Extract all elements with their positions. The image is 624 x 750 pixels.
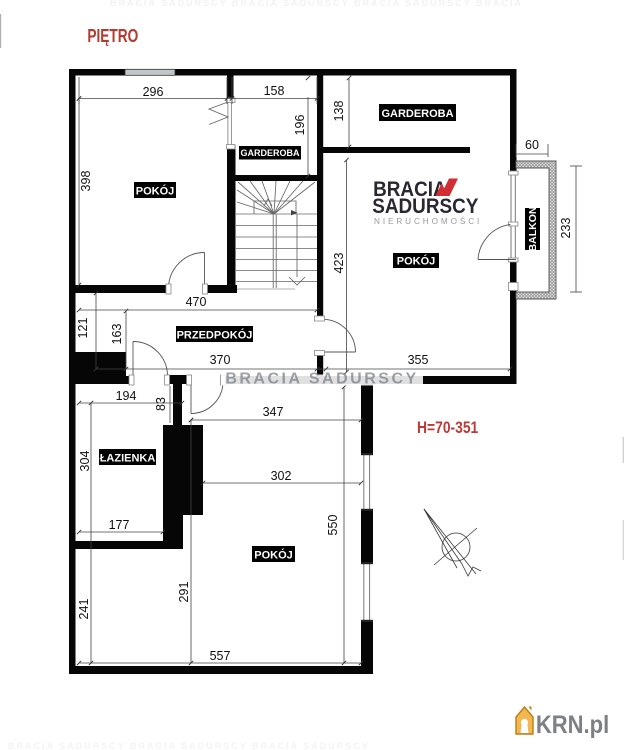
- svg-text:196: 196: [293, 115, 307, 136]
- svg-text:470: 470: [186, 295, 207, 309]
- svg-text:347: 347: [263, 405, 284, 419]
- svg-text:SADURSCY: SADURSCY: [372, 195, 479, 218]
- svg-text:296: 296: [143, 85, 164, 99]
- svg-text:233: 233: [559, 218, 573, 239]
- svg-text:423: 423: [332, 253, 346, 274]
- svg-text:NIERUCHOMOŚCI: NIERUCHOMOŚCI: [374, 215, 482, 226]
- svg-text:BRACIA SADURSCY BRACIA SADUR: BRACIA SADURSCY BRACIA SADURSCY BRACIA S…: [8, 741, 370, 750]
- svg-text:60: 60: [525, 138, 539, 152]
- svg-text:BRACIA SADURSCY BRACIA SADUR: BRACIA SADURSCY BRACIA SADURSCY BRACIA S…: [110, 0, 523, 8]
- svg-text:POKÓJ: POKÓJ: [136, 185, 175, 198]
- svg-text:194: 194: [116, 389, 137, 403]
- svg-text:KRN.pl: KRN.pl: [536, 711, 609, 739]
- svg-text:121: 121: [76, 318, 90, 339]
- svg-text:302: 302: [271, 469, 292, 483]
- svg-text:POKÓJ: POKÓJ: [397, 255, 436, 268]
- svg-text:GARDEROBA: GARDEROBA: [381, 108, 453, 120]
- svg-text:BRACIA SADURSCY: BRACIA SADURSCY: [225, 371, 418, 388]
- svg-text:304: 304: [78, 451, 92, 472]
- svg-text:370: 370: [210, 353, 231, 367]
- svg-text:158: 158: [264, 84, 285, 98]
- svg-text:H=70-351: H=70-351: [417, 419, 479, 437]
- svg-text:398: 398: [79, 171, 93, 192]
- svg-text:138: 138: [332, 101, 346, 122]
- svg-text:291: 291: [177, 582, 191, 603]
- svg-text:163: 163: [110, 324, 124, 345]
- svg-text:355: 355: [408, 353, 429, 367]
- svg-text:241: 241: [77, 599, 91, 620]
- svg-text:177: 177: [109, 518, 130, 532]
- svg-text:83: 83: [154, 397, 168, 411]
- svg-text:ŁAZIENKA: ŁAZIENKA: [100, 453, 156, 465]
- svg-text:PIĘTRO: PIĘTRO: [87, 26, 138, 46]
- svg-text:BALKON: BALKON: [527, 207, 539, 252]
- svg-text:557: 557: [210, 649, 231, 663]
- svg-text:POKÓJ: POKÓJ: [254, 549, 293, 562]
- svg-text:550: 550: [326, 515, 340, 536]
- svg-text:PRZEDPOKÓJ: PRZEDPOKÓJ: [177, 329, 253, 342]
- svg-text:GARDEROBA: GARDEROBA: [240, 148, 300, 158]
